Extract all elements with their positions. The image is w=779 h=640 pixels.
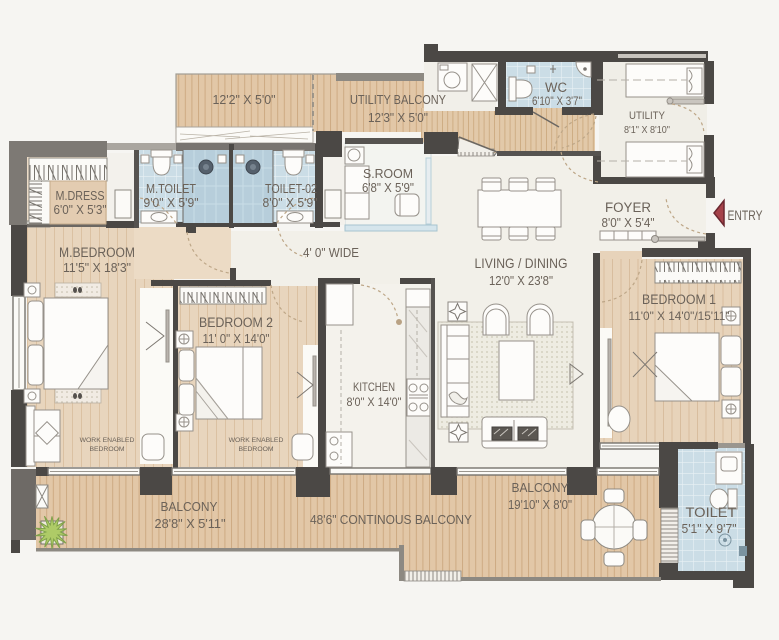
svg-text:WC: WC — [545, 80, 567, 95]
svg-text:KITCHEN: KITCHEN — [353, 380, 395, 394]
svg-text:48'6" CONTINOUS BALCONY: 48'6" CONTINOUS BALCONY — [310, 513, 473, 527]
svg-text:12'0" X 23'8": 12'0" X 23'8" — [489, 273, 553, 288]
svg-text:9'0" X 5'9": 9'0" X 5'9" — [144, 196, 199, 210]
svg-text:6'0" X 5'3": 6'0" X 5'3" — [54, 203, 107, 217]
svg-text:UTILITY: UTILITY — [629, 110, 666, 122]
svg-text:8'0" X 5'4": 8'0" X 5'4" — [602, 216, 655, 230]
svg-text:TOILET: TOILET — [686, 505, 737, 520]
svg-text:8'1" X 8'10": 8'1" X 8'10" — [624, 124, 670, 136]
svg-text:6'8" X 5'9": 6'8" X 5'9" — [362, 181, 414, 195]
svg-text:11' 0" X 14'0": 11' 0" X 14'0" — [203, 331, 270, 346]
svg-text:11'5" X 18'3": 11'5" X 18'3" — [63, 260, 131, 275]
svg-text:6'10" X 3'7": 6'10" X 3'7" — [532, 94, 582, 108]
svg-text:BALCONY: BALCONY — [512, 480, 569, 495]
svg-text:BALCONY: BALCONY — [161, 499, 218, 514]
svg-text:M.BEDROOM: M.BEDROOM — [59, 245, 135, 260]
svg-text:11'0" X 14'0"/15'11": 11'0" X 14'0"/15'11" — [629, 309, 730, 323]
svg-text:ENTRY: ENTRY — [728, 208, 763, 223]
svg-text:28'8" X 5'11": 28'8" X 5'11" — [155, 517, 226, 531]
svg-text:5'1" X 9'7": 5'1" X 9'7" — [682, 522, 737, 536]
svg-text:8'0" X 14'0": 8'0" X 14'0" — [347, 395, 402, 409]
svg-text:WORK ENABLED: WORK ENABLED — [80, 437, 135, 444]
svg-text:M.TOILET: M.TOILET — [146, 182, 196, 196]
svg-text:BEDROOM 1: BEDROOM 1 — [642, 292, 716, 307]
svg-text:BEDROOM: BEDROOM — [89, 446, 124, 453]
svg-text:UTILITY BALCONY: UTILITY BALCONY — [350, 93, 447, 107]
svg-text:S.ROOM: S.ROOM — [363, 166, 413, 181]
svg-text:FOYER: FOYER — [605, 200, 651, 215]
svg-text:12'3" X 5'0": 12'3" X 5'0" — [368, 111, 428, 125]
svg-text:M.DRESS: M.DRESS — [56, 189, 105, 203]
svg-text:WORK ENABLED: WORK ENABLED — [229, 437, 284, 444]
svg-text:BEDROOM 2: BEDROOM 2 — [199, 315, 273, 330]
svg-text:LIVING / DINING: LIVING / DINING — [475, 255, 568, 271]
svg-text:BEDROOM: BEDROOM — [238, 446, 273, 453]
svg-text:4' 0" WIDE: 4' 0" WIDE — [303, 245, 359, 260]
svg-text:19'10" X 8'0": 19'10" X 8'0" — [508, 498, 572, 512]
svg-text:12'2" X 5'0": 12'2" X 5'0" — [213, 92, 276, 107]
svg-text:8'0" X 5'9": 8'0" X 5'9" — [263, 196, 318, 210]
svg-text:TOILET-02: TOILET-02 — [265, 182, 317, 196]
